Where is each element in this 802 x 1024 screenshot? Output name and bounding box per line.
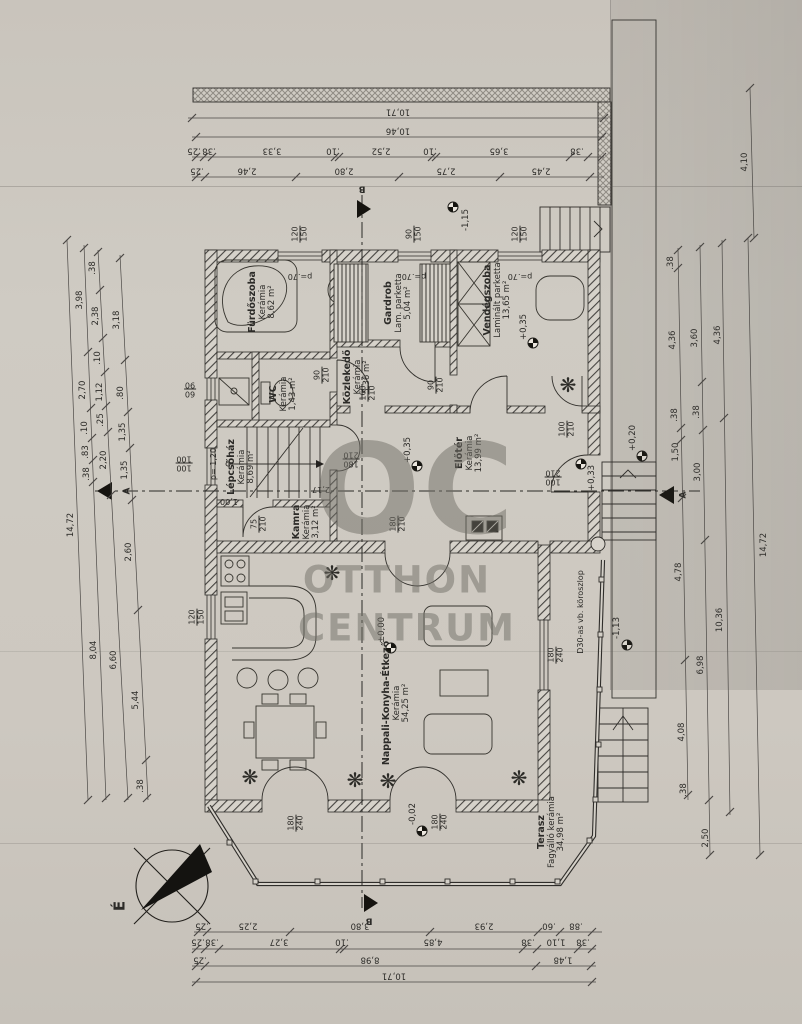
dim: 2,38 [92,307,101,326]
level-marker [637,451,648,462]
svg-text:❋: ❋ [560,373,577,397]
section-arrow-a-right [659,486,674,504]
dim: 1,35 [119,423,128,442]
svg-text:❋: ❋ [380,769,397,793]
parapet-note: p=.70 [402,272,427,280]
level-value: +0,20 [629,425,638,451]
dim: 2,50 [702,829,711,848]
level-value: -0,02 [409,803,418,825]
level-marker [576,459,587,470]
dim: 3,60 [691,329,700,348]
window-size: 120150 [292,225,309,242]
svg-text:❋: ❋ [347,768,364,792]
dim: 14,72 [67,513,76,537]
section-arrow-a-left [97,482,112,500]
level-value: ±0,00 [378,617,387,643]
dim: 3,98 [76,291,85,310]
dim: 2,45 [532,166,551,175]
dim: 4,10 [741,153,750,172]
dim: .25 [187,146,201,155]
door-size: 180240 [288,814,305,831]
level-marker [417,826,428,837]
dim: .60 [542,921,556,930]
dim: 1,35 [121,461,130,480]
dim: 3,18 [113,311,122,330]
room-label-terasz: TeraszFagyálló kerámia34,98 m² [537,796,566,868]
dim: .38 [521,937,535,946]
dim: 4,78 [675,563,684,582]
dim: .25 [193,955,207,964]
dim: 2,75 [437,166,456,175]
entry-stairs-top-icon [540,207,610,252]
dining-set-icon [244,694,326,770]
dim: .25 [195,921,209,930]
dim: .38 [202,146,216,155]
stair-run-note: 2,17 [312,485,330,493]
sofa-set-icon [424,606,492,754]
dim: 6,60 [110,651,119,670]
room-label-gardrob: GardrobLam. parketta5,04 m² [384,273,413,332]
dim: .38 [205,937,219,946]
window-size: 100100 [175,455,192,472]
armchair-icon [536,276,584,320]
dim: 10,71 [386,107,410,116]
dim: 1,48 [554,955,573,964]
svg-text:❋: ❋ [511,766,528,790]
parapet-note: p=.70 [508,272,533,280]
dim: .38 [576,937,590,946]
level-value: -1,13 [613,617,622,639]
dim: 6,98 [697,656,706,675]
dim: 10,46 [386,126,410,135]
dim: 8,98 [361,955,380,964]
dim: .25 [97,413,106,427]
dim: 4,08 [678,723,687,742]
parapet-note: p=.70 [288,272,313,280]
dim: .38 [680,783,689,797]
dim: 1,12 [96,383,105,402]
section-arrow-b-top [357,200,371,218]
room-label-eloter: ElőtérKerámia13,99 m² [455,434,484,473]
dim: 2,20 [100,451,109,470]
dim: .10 [326,146,340,155]
dim: 2,93 [475,921,494,930]
door-size: 180210 [342,451,359,468]
dim: 3,27 [270,937,289,946]
porch-stairs-icon [602,462,656,540]
dim: 2,46 [238,166,257,175]
floorplan-scan: ❋❋❋ ❋❋❋ [0,0,802,1024]
dim: .38 [570,146,584,155]
svg-text:❋: ❋ [324,561,341,585]
window-size: 90150 [406,225,423,242]
wardrobe-rail-icon [334,264,368,342]
room-label-kamra: KamraKerámia3,12 m² [292,505,321,540]
window-size: 6090 [184,381,196,398]
column-note: D30-as vb. köroszlop [577,570,585,654]
dim: .10 [81,421,90,435]
dim: 4,36 [714,326,723,345]
garden-stairs-icon [598,708,648,802]
room-label-lepcsohaz: LépcsőházKerámia8,69 m² [227,439,256,495]
dim: .10 [335,937,349,946]
dim: 3,80 [351,921,370,930]
dim: 2,25 [239,921,258,930]
door-size: 100210 [559,420,576,437]
level-marker [622,640,633,651]
room-label-nappali: Nappali-Konyha-ÉtkezőKerámia54,25 m² [382,641,411,765]
north-label: É [113,901,128,911]
section-label-b: B [359,184,366,193]
dim: 2,52 [372,146,391,155]
dim: .38 [89,261,98,275]
dim: 4,85 [424,937,443,946]
level-marker [412,461,423,472]
door-size: 180240 [432,813,449,830]
door-size: 90210 [428,376,445,393]
dim: .38 [671,408,680,422]
dim: .38 [137,779,146,793]
door-size: 160210 [360,384,377,401]
dim: .25 [191,937,205,946]
level-marker [448,202,459,213]
dim: 5,44 [132,691,141,710]
plan-drawing: ❋❋❋ ❋❋❋ [0,0,802,1024]
dim: 2,80 [335,166,354,175]
dim: 1,50 [672,443,681,462]
dim: 3,33 [263,146,282,155]
stair-width-note: 1,00 [220,497,238,505]
dim: 10,71 [382,971,406,980]
dim: 8,04 [90,641,99,660]
section-label-a: A [680,492,689,499]
door-size: 75210 [251,515,268,532]
dim: .38 [667,256,676,270]
window-size: 180240 [548,646,565,663]
level-value: +0,35 [520,314,529,340]
dim: .38 [693,405,702,419]
dim: .10 [94,351,103,365]
section-arrow-b-bottom [364,894,378,912]
dim: 3,00 [694,463,703,482]
dim: 4,36 [669,331,678,350]
dim: 3,65 [490,146,509,155]
level-value: +0,33 [588,465,597,491]
level-marker [528,338,539,349]
dim: .25 [190,166,204,175]
dim: 14,72 [760,533,769,557]
compass-icon [134,844,212,924]
retaining-wall [612,20,656,698]
kitchen-icons [221,556,318,690]
room-label-furdoszoba: FürdőszobaKerámia8,62 m² [248,271,277,333]
dim: .80 [117,386,126,400]
stair-parapet-note: p= 1,20 [210,448,218,480]
dim: .10 [423,146,437,155]
level-value: -1,15 [462,209,471,231]
dim: .38 [83,467,92,481]
dim: 1,10 [547,937,566,946]
door-size: 180210 [390,515,407,532]
column-icon [591,537,605,551]
dim: 2,60 [125,543,134,562]
level-value: +0,35 [404,437,413,463]
level-marker [386,643,397,654]
window-size: 120150 [512,225,529,242]
door-swings [243,347,588,800]
dim: .88 [569,921,583,930]
dim: 10,36 [716,608,725,632]
svg-text:❋: ❋ [242,765,259,789]
door-size: 90210 [314,366,331,383]
shoe-cabinet-icon [466,516,502,540]
dim: .83 [82,445,91,459]
dim: 2,70 [79,381,88,400]
door-size: 100210 [544,469,561,486]
shower-icon [219,378,249,405]
section-label-a: A [124,488,133,495]
window-size: 120150 [189,608,206,625]
room-label-wc: WCKerámia1,43 m² [269,377,298,412]
